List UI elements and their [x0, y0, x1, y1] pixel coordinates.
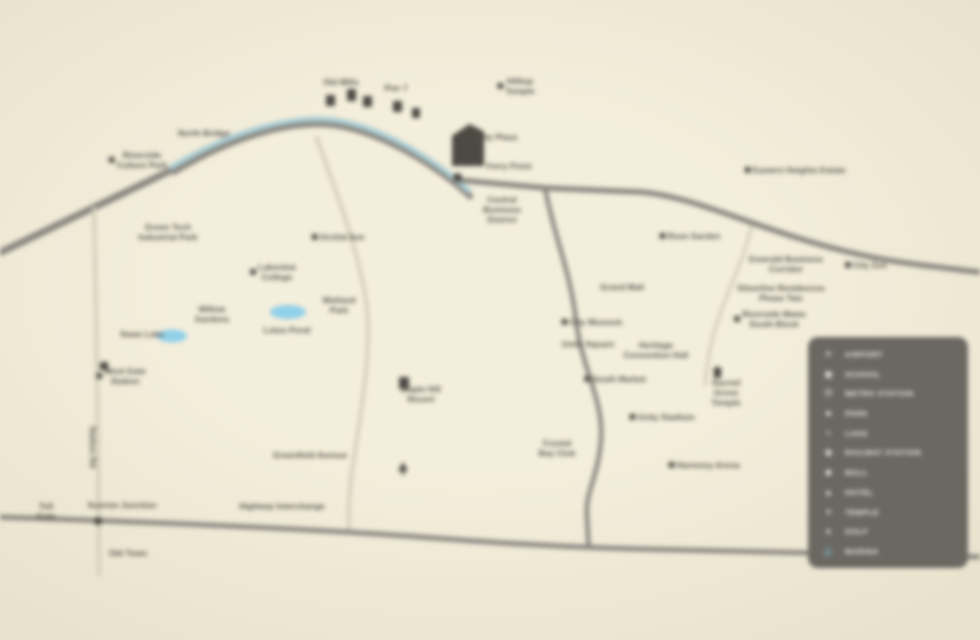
map-label: Riverside Culture Park [109, 150, 168, 170]
map-label: Riverside Mews South Block [734, 309, 806, 329]
map-label: Orchid Ave [312, 232, 365, 242]
legend-row: ●GOLF [822, 527, 956, 536]
map-label: Lakeview College [250, 262, 296, 282]
map-label: North Bridge [178, 128, 230, 138]
map-label-text: Eastern Heights Estate [753, 165, 846, 175]
legend-label: RAILWAY STATION [845, 448, 921, 457]
map-label-text: Riverside Mews South Block [742, 309, 806, 329]
map-label: Hilltop Temple [497, 76, 534, 96]
map-label: Green Tech Industrial Park [138, 222, 197, 242]
map-label: Pier 7 [384, 83, 407, 93]
legend-row: ⚓MARINA [822, 547, 956, 556]
map-label-text: Emerald Business Corridor [749, 254, 823, 274]
dot-icon [453, 173, 462, 182]
map-label-text: Sacred Grove Temple [711, 378, 740, 409]
map-label: Central Business District [483, 195, 521, 226]
map-label: Silverline Residences Phase Two [737, 283, 824, 303]
map-blur-layer: North BridgeRiverside Culture ParkOld Mi… [0, 0, 980, 640]
map-label-text: Toll Gate [37, 501, 56, 521]
marina-legend-icon: ⚓ [822, 547, 835, 556]
map-marker-icon [584, 376, 590, 382]
map-label-text: Harmony Arena [677, 460, 740, 470]
map-label: Sacred Grove Temple [711, 378, 740, 409]
map-label-text: South Market [592, 374, 646, 384]
map-label: Eastern Heights Estate [745, 165, 846, 175]
legend-label: MARINA [845, 547, 879, 556]
map-label-text: Wetland Park [323, 295, 356, 315]
map-marker-icon [745, 167, 751, 173]
map-marker-icon [845, 262, 851, 268]
map-label-text: Greenfield Avenue [273, 450, 347, 460]
legend-label: METRO STATION [845, 389, 914, 398]
legend-label: GOLF [845, 527, 868, 536]
dot-icon [94, 517, 102, 525]
mall-legend-icon: ◆ [822, 468, 835, 477]
map-marker-icon [497, 83, 503, 89]
map-label: Wetland Park [323, 295, 356, 315]
school-legend-icon: ▣ [822, 370, 835, 379]
map-legend: ✈AIRPORT▣SCHOOLⓂMETRO STATION♣PARK≈LAKE◉… [808, 337, 968, 568]
lake-large [270, 305, 306, 319]
map-label-text: North Bridge [178, 128, 230, 138]
legend-label: AIRPORT [845, 350, 883, 359]
map-label-text: Old Town [109, 548, 147, 558]
legend-row: ✦TEMPLE [822, 508, 956, 517]
map-label: Willow Gardens [195, 304, 230, 324]
map-label-text: Ferry Point [487, 161, 532, 171]
legend-label: TEMPLE [845, 508, 879, 517]
branch-road [545, 188, 601, 549]
map-label-text: Station Rd [88, 426, 98, 469]
map-marker-icon [312, 234, 318, 240]
map-label: Emerald Business Corridor [749, 254, 823, 274]
map-marker-icon [96, 373, 102, 379]
map-label-text: Lakeview College [258, 262, 296, 282]
block-icon [412, 108, 420, 118]
map-label: West Gate Station [96, 366, 145, 386]
map-label: Greenfield Avenue [273, 450, 347, 460]
railway-station-legend-icon: ◉ [822, 448, 835, 457]
map-label: Toll Gate [37, 501, 56, 521]
map-marker-icon [660, 233, 666, 239]
legend-label: PARK [845, 409, 868, 418]
map-label-text: Lotus Pond [264, 325, 311, 335]
map-label-text: Willow Gardens [195, 304, 230, 324]
map-label: Ferry Point [487, 161, 532, 171]
airport-legend-icon: ✈ [822, 350, 835, 359]
legend-row: ◉RAILWAY STATION [822, 448, 956, 457]
map-label: Station Rd [88, 426, 98, 469]
map-label: Crystal Bay Club [539, 438, 576, 458]
location-map: North BridgeRiverside Culture ParkOld Mi… [0, 0, 980, 640]
hotel-legend-icon: ▲ [822, 488, 835, 497]
map-label: Rose Garden [660, 231, 721, 241]
map-label: City Zoo [845, 260, 887, 270]
legend-label: MALL [845, 468, 868, 477]
legend-label: SCHOOL [845, 370, 881, 379]
map-label-text: Hilltop Temple [505, 76, 534, 96]
legend-row: ▣SCHOOL [822, 370, 956, 379]
map-marker-icon [109, 157, 115, 163]
lake-legend-icon: ≈ [822, 429, 835, 438]
block-icon [347, 89, 356, 101]
legend-row: ◆MALL [822, 468, 956, 477]
map-label-text: City Museum [570, 317, 623, 327]
map-label: Old Mills [323, 77, 358, 87]
map-label: Old Town [109, 548, 147, 558]
map-label: Swan Lake [120, 329, 164, 339]
legend-label: HOTEL [845, 488, 873, 497]
map-marker-icon [250, 269, 256, 275]
block-icon [393, 101, 402, 112]
map-label-text: Maple Hill Resort [401, 384, 441, 404]
map-label-text: West Gate Station [104, 366, 145, 386]
map-label: Maple Hill Resort [401, 384, 441, 404]
map-marker-icon [734, 316, 740, 322]
map-label: Grand Mall [600, 282, 644, 292]
map-label-text: Rose Garden [668, 231, 721, 241]
map-label-text: Riverside Culture Park [117, 150, 168, 170]
legend-row: ≈LAKE [822, 429, 956, 438]
map-marker-icon [629, 414, 635, 420]
map-label: Highway Interchange [239, 501, 325, 511]
temple-legend-icon: ✦ [822, 508, 835, 517]
map-label: Harmony Arena [669, 460, 740, 470]
map-label: City Plaza [477, 132, 517, 142]
light-road-mid [316, 136, 368, 532]
legend-row: ♣PARK [822, 409, 956, 418]
map-label-text: Grand Mall [600, 282, 644, 292]
map-label-text: Sunrise Junction [88, 500, 157, 510]
main-road [458, 180, 980, 273]
legend-label: LAKE [845, 429, 868, 438]
park-legend-icon: ♣ [822, 409, 835, 418]
map-label: City Museum [562, 317, 623, 327]
map-marker-icon [669, 462, 675, 468]
metro-station-legend-icon: Ⓜ [822, 389, 835, 398]
map-label-text: Orchid Ave [320, 232, 365, 242]
map-label-text: Old Mills [323, 77, 358, 87]
map-label-text: City Plaza [477, 132, 517, 142]
map-label-text: Crystal Bay Club [539, 438, 576, 458]
light-road-east [705, 224, 752, 386]
map-label-text: Silverline Residences Phase Two [737, 283, 824, 303]
legend-row: ⓂMETRO STATION [822, 389, 956, 398]
map-label-text: Green Tech Industrial Park [138, 222, 197, 242]
map-label-text: Unity Square [562, 339, 614, 349]
map-label: Heritage Convention Hall [624, 340, 689, 360]
map-label: Lotus Pond [264, 325, 311, 335]
map-label: South Market [584, 374, 646, 384]
block-icon [326, 95, 335, 106]
map-label: Unity Square [562, 339, 614, 349]
map-marker-icon [562, 319, 568, 325]
golf-legend-icon: ● [822, 527, 835, 536]
legend-row: ▲HOTEL [822, 488, 956, 497]
legend-row: ✈AIRPORT [822, 350, 956, 359]
map-label-text: Pier 7 [384, 83, 407, 93]
block-icon [363, 96, 372, 107]
map-label-text: Swan Lake [120, 329, 164, 339]
map-label: Unity Stadium [629, 412, 694, 422]
map-label-text: Heritage Convention Hall [624, 340, 689, 360]
map-label: Sunrise Junction [88, 500, 157, 510]
map-label-text: Unity Stadium [637, 412, 694, 422]
map-label-text: City Zoo [853, 260, 887, 270]
map-label-text: Highway Interchange [239, 501, 325, 511]
map-label-text: Central Business District [483, 195, 521, 226]
